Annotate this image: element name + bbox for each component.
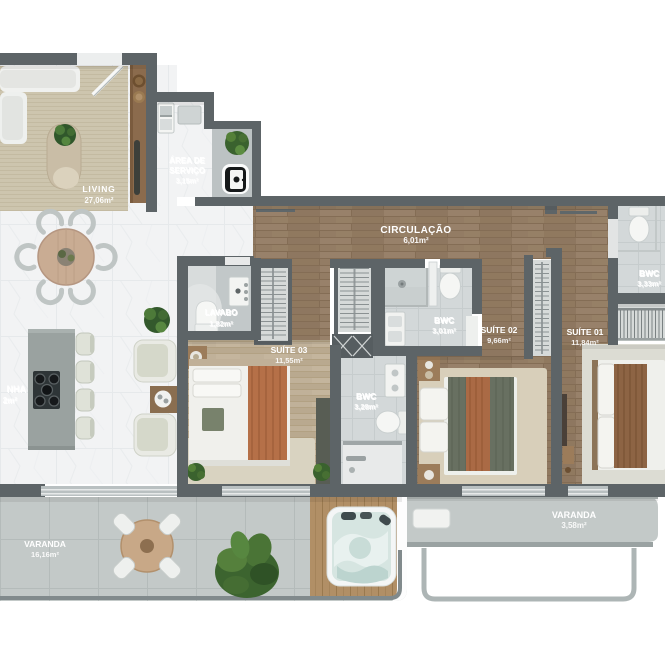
svg-text:3,15m²: 3,15m²	[176, 176, 199, 185]
svg-text:SERVIÇO: SERVIÇO	[169, 166, 205, 175]
svg-text:9,66m²: 9,66m²	[487, 336, 511, 345]
svg-text:ÁREA DE: ÁREA DE	[169, 156, 205, 165]
svg-text:3,28m²: 3,28m²	[354, 402, 378, 411]
svg-text:11,55m²: 11,55m²	[275, 356, 303, 365]
svg-text:16,16m²: 16,16m²	[31, 550, 59, 559]
svg-text:LAVABO: LAVABO	[205, 308, 238, 317]
svg-text:LIVING: LIVING	[82, 184, 115, 194]
svg-text:SUÍTE 01: SUÍTE 01	[567, 327, 604, 337]
svg-text:3,33m²: 3,33m²	[637, 279, 661, 288]
svg-text:SUÍTE 03: SUÍTE 03	[271, 345, 308, 355]
svg-text:VARANDA: VARANDA	[24, 539, 66, 549]
svg-text:27,06m²: 27,06m²	[84, 196, 113, 205]
svg-text:1,82m²: 1,82m²	[209, 319, 233, 328]
svg-text:BWC: BWC	[434, 315, 454, 325]
svg-text:BWC: BWC	[639, 268, 659, 278]
svg-text:VARANDA: VARANDA	[552, 510, 597, 520]
svg-text:SUÍTE 02: SUÍTE 02	[481, 325, 518, 335]
svg-text:3,58m²: 3,58m²	[561, 521, 587, 530]
svg-text:6,01m²: 6,01m²	[403, 236, 429, 245]
svg-text:NHA: NHA	[7, 384, 27, 394]
svg-text:CIRCULAÇÃO: CIRCULAÇÃO	[380, 223, 451, 236]
svg-text:3,01m²: 3,01m²	[432, 326, 456, 335]
svg-text:BWC: BWC	[356, 391, 376, 401]
svg-text:2m²: 2m²	[3, 396, 18, 405]
